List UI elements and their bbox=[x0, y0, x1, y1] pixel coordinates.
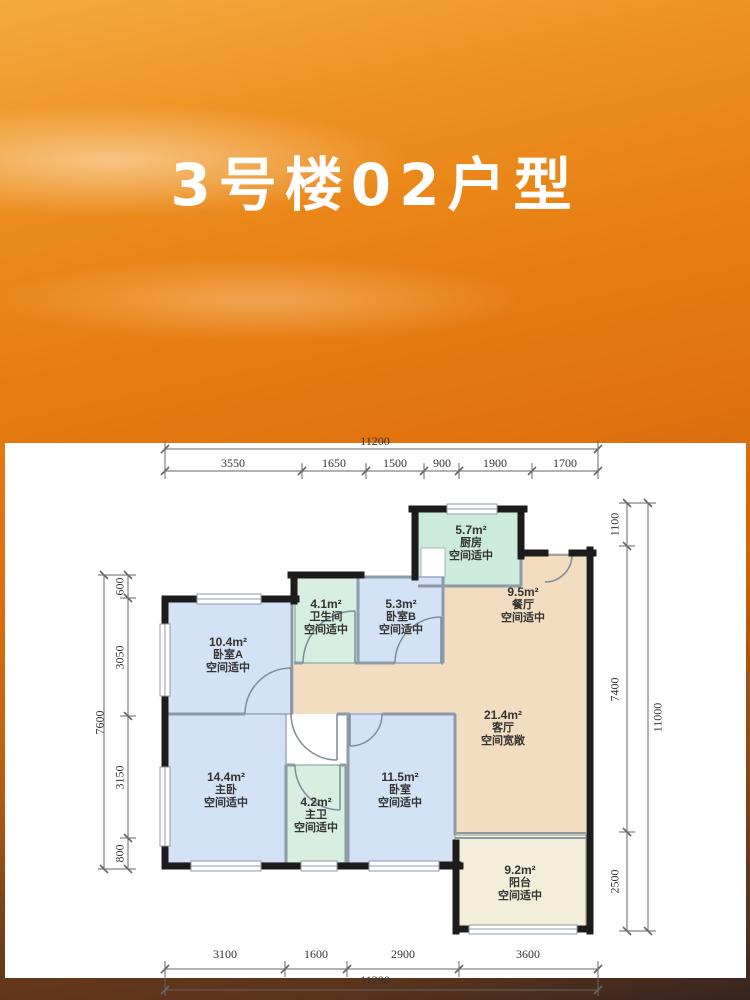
dim-top-4: 900 bbox=[412, 456, 472, 471]
window-kitchen-top bbox=[447, 504, 497, 514]
label-balcony: 9.2m² 阳台 空间适中 bbox=[474, 864, 566, 903]
dim-left-total: 7600 bbox=[93, 693, 108, 753]
dim-top-2: 1650 bbox=[304, 456, 364, 471]
label-kitchen: 5.7m² 厨房 空间适中 bbox=[425, 524, 517, 563]
dim-right-1: 1100 bbox=[608, 500, 623, 550]
dim-bottom-2: 1600 bbox=[286, 947, 346, 962]
dim-top-1: 3550 bbox=[203, 456, 263, 471]
label-living: 21.4m² 客厅 空间宽敞 bbox=[457, 709, 549, 748]
dim-top-6: 1700 bbox=[535, 456, 595, 471]
dim-top-total: 11200 bbox=[345, 434, 405, 449]
dim-left-2: 3050 bbox=[113, 633, 128, 683]
window-bedroom-a-top bbox=[197, 594, 261, 604]
label-dining: 9.5m² 餐厅 空间适中 bbox=[477, 586, 569, 625]
label-bedroom: 11.5m² 卧室 空间适中 bbox=[354, 771, 446, 810]
dim-right-3: 2500 bbox=[608, 857, 623, 907]
window-master-bottom bbox=[191, 861, 261, 871]
label-bedroom-a: 10.4m² 卧室A 空间适中 bbox=[182, 636, 274, 675]
dim-top-5: 1900 bbox=[465, 456, 525, 471]
window-bedroom-bottom bbox=[369, 861, 439, 871]
label-master: 14.4m² 主卧 空间适中 bbox=[180, 771, 272, 810]
dim-left-1: 600 bbox=[113, 562, 128, 612]
master-door bbox=[291, 714, 337, 760]
floorplan-poster: { "title": "3号楼02户型", "colors": { "accen… bbox=[0, 0, 750, 1000]
window-master-bath-bottom bbox=[301, 861, 337, 871]
dim-left-4: 800 bbox=[113, 829, 128, 879]
dim-bottom-1: 3100 bbox=[195, 947, 255, 962]
dim-bottom-total: 11200 bbox=[345, 973, 405, 988]
dim-right-total: 11000 bbox=[651, 688, 666, 748]
label-master-bath: 4.2m² 主卫 空间适中 bbox=[270, 796, 362, 835]
label-bedroom-b: 5.3m² 卧室B 空间适中 bbox=[355, 598, 447, 637]
window-balcony-bottom bbox=[469, 925, 577, 934]
dim-bottom-3: 2900 bbox=[373, 947, 433, 962]
dim-bottom-4: 3600 bbox=[498, 947, 558, 962]
window-master-left bbox=[160, 767, 170, 846]
dim-right-2: 7400 bbox=[608, 665, 623, 715]
dim-left-3: 3150 bbox=[113, 753, 128, 803]
window-bedroom-a-left bbox=[160, 624, 170, 696]
